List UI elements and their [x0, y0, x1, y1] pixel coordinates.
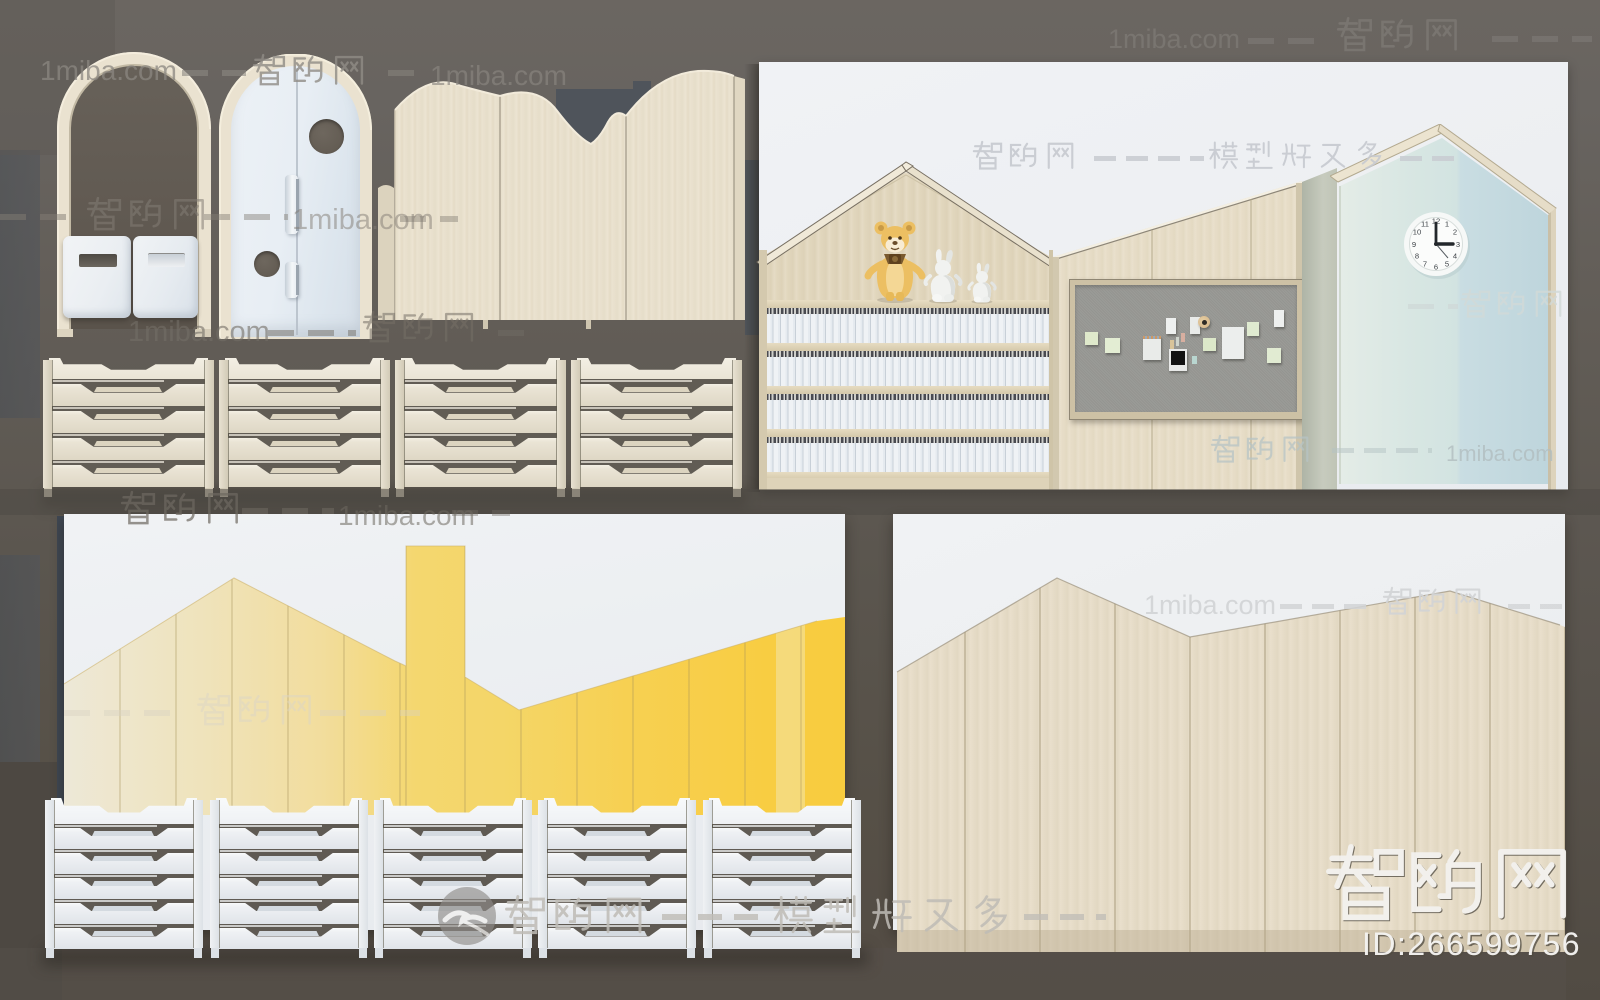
svg-text:8: 8 — [1415, 252, 1419, 261]
svg-text:6: 6 — [1434, 263, 1438, 272]
svg-text:2: 2 — [1453, 228, 1457, 237]
svg-text:3: 3 — [1456, 240, 1460, 249]
svg-text:4: 4 — [1453, 252, 1457, 261]
svg-text:10: 10 — [1413, 228, 1421, 237]
svg-text:9: 9 — [1412, 240, 1416, 249]
svg-text:7: 7 — [1423, 260, 1427, 269]
svg-text:11: 11 — [1421, 220, 1429, 229]
svg-text:1: 1 — [1445, 220, 1449, 229]
svg-text:5: 5 — [1445, 260, 1449, 269]
